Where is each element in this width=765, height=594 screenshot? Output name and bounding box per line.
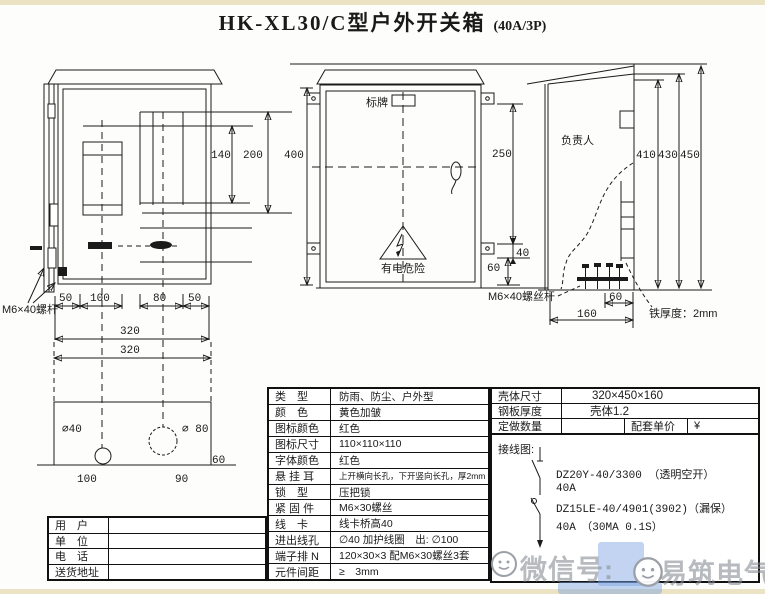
spec-label: 进出线孔 [269,532,331,547]
dim-320b-label: 320 [120,345,140,357]
spec-label: 类 型 [269,389,331,404]
dim-410-label: 410 [636,150,656,162]
order-label: 钢板厚度 [492,404,562,418]
page-title: HK-XL30/C型户外开关箱(40A/3P) [0,7,765,37]
spec-label: 元件间距 [269,564,331,579]
spec-label: 线 卡 [269,516,331,531]
bolt-left-label: M6×40螺杆 [2,302,58,316]
dim-100-label: 100 [90,293,110,305]
nameplate-label: 标牌 [366,95,388,109]
hole-40-label: ∅40 [62,424,82,436]
customer-value [109,549,117,564]
bolt-mid-label: M6×40螺丝杆 [488,289,555,303]
dim-430-label: 430 [658,150,678,162]
table-row: 壳体尺寸 320×450×160 [492,389,758,403]
dim-400-label: 400 [284,150,304,162]
warning-label: 有电危险 [381,261,425,275]
unit-price-value: ¥ [688,419,758,433]
wiring-diagram-cell: 接线图: DZ20Y-40/3300 （透明空开） 40A DZ15LE-40/… [490,435,760,583]
spec-value: 红色 [331,421,360,436]
table-row: 进出线孔∅40 加护线圈 出: ∅100 [269,531,488,547]
spec-label: 图标颜色 [269,421,331,436]
title-rating: (40A/3P) [493,19,546,34]
table-row: 图标尺寸110×110×110 [269,436,488,452]
table-row: 单 位 [49,533,265,549]
side-view-drawing: 负责人 铁厚度：2mm 410 [527,64,717,328]
spec-value: 红色 [331,453,360,468]
spec-value: 线卡桥高40 [331,516,393,531]
dim-40-label: 40 [516,248,529,260]
spec-label: 颜 色 [269,405,331,420]
table-row: 锁 型压把锁 [269,484,488,500]
table-row: 端子排 N120×30×3 配M6×30螺丝3套 [269,547,488,563]
table-row: 图标颜色红色 [269,420,488,436]
dim-60b-label: 60 [609,292,622,304]
dim-b100-label: 100 [77,474,97,486]
table-row: 紧 固 件M6×30螺丝 [269,499,488,515]
spec-label: 紧 固 件 [269,500,331,515]
spec-label: 字体颜色 [269,453,331,468]
spec-label: 图标尺寸 [269,437,331,452]
front-view-drawing: 140 200 50 100 80 50 320 320 M6×40螺杆 [2,70,292,448]
title-text: HK-XL30/C型户外开关箱 [219,11,486,35]
thickness-label: 铁厚度：2mm [649,306,717,320]
table-row: 钢板厚度 壳体1.2 [492,403,758,418]
spec-value: 防雨、防尘、户外型 [331,389,434,404]
customer-table: 用 户 单 位 电 话 送货地址 [47,516,267,581]
door-view-drawing: 标牌 有电危险 400 250 [284,64,707,303]
spec-label: 锁 型 [269,485,331,500]
app-canvas: HK-XL30/C型户外开关箱(40A/3P) [0,0,765,594]
order-value: 壳体1.2 [562,404,629,418]
spec-label: 悬 挂 耳 [269,469,331,484]
dim-250-label: 250 [492,149,512,161]
table-row: 用 户 [49,518,265,533]
spec-value: 压把锁 [331,485,371,500]
spec-value: 上开横向长孔，下开竖向长孔，厚2mm [331,469,485,484]
table-row: 颜 色黄色加皱 [269,404,488,420]
dim-b90-label: 90 [175,474,188,486]
spec-value: ≥ 3mm [331,564,379,579]
table-row: 类 型防雨、防尘、户外型 [269,389,488,404]
dim-60a-label: 60 [487,263,500,275]
hole-80-label: ∅ 80 [182,424,208,436]
table-row: 元件间距≥ 3mm [269,563,488,579]
table-row: 悬 挂 耳上开横向长孔，下开竖向长孔，厚2mm [269,468,488,484]
spec-value: 黄色加皱 [331,405,381,420]
spec-table: 类 型防雨、防尘、户外型 颜 色黄色加皱 图标颜色红色 图标尺寸110×110×… [267,387,490,581]
dim-50b-label: 50 [188,293,201,305]
table-row: 送货地址 [49,564,265,580]
table-row: 电 话 [49,548,265,564]
dim-80-label: 80 [153,293,166,305]
order-value: 320×450×160 [562,389,663,403]
dim-b60-label: 60 [212,455,225,467]
table-row: 定做数量 配套单价 ¥ [492,418,758,433]
dim-140-label: 140 [211,150,231,162]
bottom-view-drawing: ∅40 ∅ 80 100 90 60 [37,342,236,486]
table-row: 线 卡线卡桥高40 [269,515,488,531]
spec-value: M6×30螺丝 [331,500,392,515]
customer-label: 单 位 [49,534,109,549]
qty-value [562,419,625,433]
customer-value [109,518,117,533]
dim-160-label: 160 [577,309,597,321]
dim-200-label: 200 [243,150,263,162]
order-label: 壳体尺寸 [492,389,562,403]
qty-label: 定做数量 [492,419,562,433]
wiring-diagram [492,435,758,579]
customer-value [109,534,117,549]
spec-label: 端子排 N [269,548,331,563]
spec-value: 110×110×110 [331,437,401,452]
customer-label: 电 话 [49,549,109,564]
spec-value: ∅40 加护线圈 出: ∅100 [331,532,458,547]
table-row: 字体颜色红色 [269,452,488,468]
spec-value: 120×30×3 配M6×30螺丝3套 [331,548,469,563]
person-label: 负责人 [561,133,594,147]
customer-label: 送货地址 [49,565,109,580]
unit-price-label: 配套单价 [625,419,688,433]
customer-value [109,565,117,580]
dim-450-label: 450 [680,150,700,162]
dim-50a-label: 50 [59,293,72,305]
dim-320a-label: 320 [120,326,140,338]
customer-label: 用 户 [49,518,109,533]
order-table: 壳体尺寸 320×450×160 钢板厚度 壳体1.2 定做数量 配套单价 ¥ [490,387,760,435]
